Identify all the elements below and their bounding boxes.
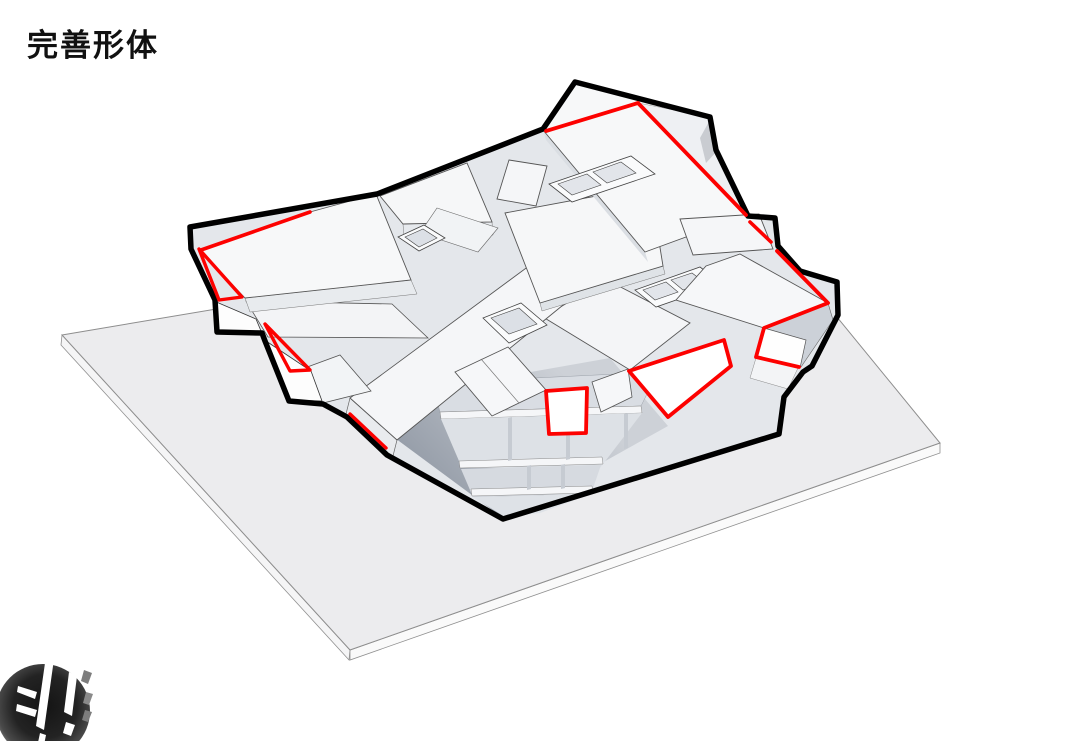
- right-mid-slab: [680, 214, 773, 255]
- slide-page: 完善形体: [0, 0, 1079, 741]
- terrace-fin-4: [527, 465, 531, 490]
- terrace-fin-5: [561, 464, 565, 489]
- logo-speckle-1: [81, 670, 92, 684]
- terrace-fin-1: [508, 417, 512, 461]
- page-title: 完善形体: [27, 20, 159, 65]
- red-quad-block: [546, 388, 587, 434]
- terrace-fin-3: [624, 413, 628, 449]
- massing-model-figure: [0, 0, 1079, 741]
